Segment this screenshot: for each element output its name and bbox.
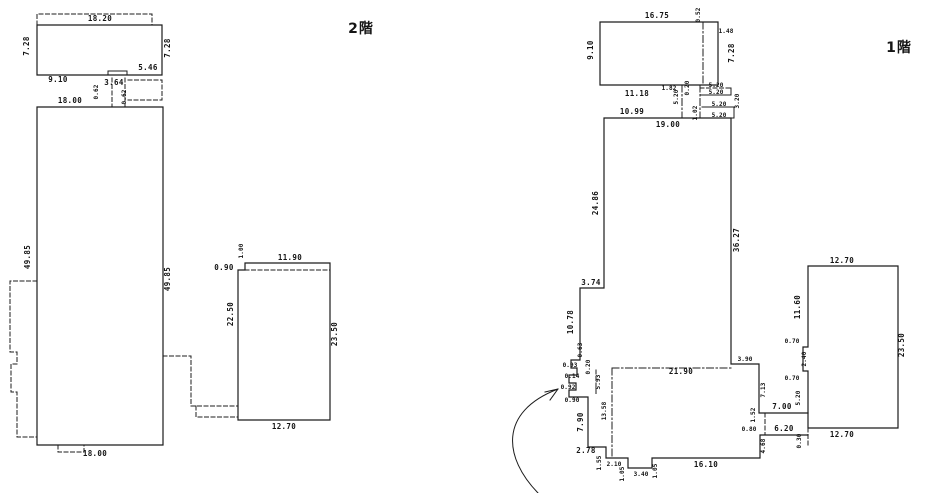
f1-annex-top-width-label: 12.70 xyxy=(830,256,854,265)
f2-annex-right-height-label: 23.50 xyxy=(330,322,339,346)
f1-wing-right-notch-label: 3.90 xyxy=(738,356,753,363)
floor1-annex-block-outline xyxy=(803,266,898,428)
f1-bottom-step-height-label: 1.55 xyxy=(596,455,603,470)
f1-link-width-label: 7.00 xyxy=(772,402,792,411)
f1-inner-height-label: 13.58 xyxy=(601,401,608,420)
f2-annex-left-height-label: 22.50 xyxy=(226,302,235,326)
f1-bottom-width-label: 16.10 xyxy=(694,460,718,469)
f2-main-bottom-width-label: 18.00 xyxy=(83,449,107,458)
f2-annex-notch-label: 1.00 xyxy=(238,243,245,258)
f1-step-width-label: 3.74 xyxy=(581,278,601,287)
f1-top-right-height-label: 7.28 xyxy=(727,43,736,63)
floor1-title: 1階 xyxy=(886,39,912,56)
floor-plan-drawing: 18.20 7.28 7.28 9.10 5.46 3.64 0.62 0.62… xyxy=(0,0,950,493)
f1-jog-c-label: 0.14 xyxy=(565,373,580,380)
f2-connector-width-label: 3.64 xyxy=(104,78,124,87)
f1-annex-notch-v-label: 2.40 xyxy=(801,351,808,366)
f1-main-right-height-label: 36.27 xyxy=(732,228,741,252)
f2-annex-top-width-label: 11.90 xyxy=(278,253,302,262)
f1-gap-height-label: 0.20 xyxy=(684,80,691,95)
f1-link-v-label: 1.52 xyxy=(750,407,757,422)
floor2-main-block-outline xyxy=(37,107,163,445)
f1-left-bottom-height-label: 7.90 xyxy=(576,412,585,432)
f2-top-width-label: 18.20 xyxy=(88,14,112,23)
f1-stair-w4-label: 5.20 xyxy=(712,112,727,119)
f2-annex-offset-label: 0.90 xyxy=(214,263,234,272)
floor2-plan: 18.20 7.28 7.28 9.10 5.46 3.64 0.62 0.62… xyxy=(10,14,374,458)
f1-annex-below-label: 0.30 xyxy=(796,433,803,448)
f1-jog-e-label: 0.90 xyxy=(565,397,580,404)
f1-bottom-notch-right-label: 1.05 xyxy=(652,463,659,478)
f1-bottom-step-width-label: 2.78 xyxy=(576,446,596,455)
f1-stair-w3-label: 5.20 xyxy=(712,101,727,108)
f1-bottom-notch-width-label: 3.40 xyxy=(634,471,649,478)
f2-connector-right-label: 0.62 xyxy=(121,89,128,104)
f1-jog-d-label: 0.92 xyxy=(561,384,576,391)
f2-top-right-height-label: 7.28 xyxy=(163,38,172,58)
floor1-top-block-outline xyxy=(600,22,718,85)
f2-top-bottom-left-label: 9.10 xyxy=(48,75,68,84)
f1-wing-right-v2-label: 4.68 xyxy=(760,438,767,453)
floor2-annex-block-outline xyxy=(238,263,330,420)
floor1-plan: 16.75 9.10 0.52 1.48 7.28 11.18 1.82 0.2… xyxy=(513,7,912,493)
f1-stair-right-v-label: 3.20 xyxy=(734,93,741,108)
f1-stair-small-v-label: 1.02 xyxy=(692,105,699,120)
f1-notch-height-label: 0.52 xyxy=(695,7,702,22)
f1-main-left-height-label: 24.86 xyxy=(591,191,600,215)
f1-jog-f-label: 0.20 xyxy=(585,359,592,374)
f1-link-width2-label: 6.20 xyxy=(774,424,794,433)
f1-annex-notch-b-label: 0.70 xyxy=(785,375,800,382)
f1-stair-w1-label: 5.20 xyxy=(709,82,724,89)
f1-jog-a-label: 0.63 xyxy=(577,342,584,357)
f1-bottom-notch-left-label: 1.05 xyxy=(619,466,626,481)
f2-main-right-height-label: 49.85 xyxy=(163,267,172,291)
floor2-title: 2階 xyxy=(348,20,374,37)
f1-link-small-label: 0.80 xyxy=(742,426,757,433)
f2-main-left-height-label: 49.85 xyxy=(23,245,32,269)
f2-connector-left-label: 0.62 xyxy=(93,84,100,99)
f1-main-top-width-label: 19.00 xyxy=(656,120,680,129)
floor2-annex-link-dashed xyxy=(163,356,238,417)
f1-annex-bottom-width-label: 12.70 xyxy=(830,430,854,439)
f2-top-bottom-right-label: 5.46 xyxy=(138,63,158,72)
f1-wing-top-width-label: 21.90 xyxy=(669,367,693,376)
f1-wing-right-v1-label: 7.13 xyxy=(760,382,767,397)
f1-annex-left-v1-label: 11.60 xyxy=(793,295,802,319)
floor2-left-eave-dashed xyxy=(10,281,84,452)
f2-top-left-height-label: 7.28 xyxy=(22,36,31,56)
f1-stair-w2-label: 5.20 xyxy=(709,89,724,96)
f1-jog-b-label: 0.93 xyxy=(563,362,578,369)
hand-drawn-arrow xyxy=(513,389,558,493)
scanned-floor-plan-sheet: 18.20 7.28 7.28 9.10 5.46 3.64 0.62 0.62… xyxy=(0,0,950,493)
f1-top-width-label: 16.75 xyxy=(645,11,669,20)
f1-inner-left-v-label: 5.93 xyxy=(595,374,602,389)
f1-notch-width-label: 1.48 xyxy=(719,28,734,35)
f1-left-lower-height-label: 10.78 xyxy=(566,310,575,334)
f1-stair-left-v-label: 5.20 xyxy=(673,89,680,104)
f1-annex-left-v2-label: 5.20 xyxy=(795,390,802,405)
f2-main-top-width-label: 18.00 xyxy=(58,96,82,105)
f1-annex-notch-a-label: 0.70 xyxy=(785,338,800,345)
f1-main-top-seg-label: 10.99 xyxy=(620,107,644,116)
f1-top-left-height-label: 9.10 xyxy=(586,40,595,60)
f1-annex-right-height-label: 23.50 xyxy=(897,333,906,357)
f1-top-bottom-width-label: 11.18 xyxy=(625,89,649,98)
f2-annex-bottom-width-label: 12.70 xyxy=(272,422,296,431)
